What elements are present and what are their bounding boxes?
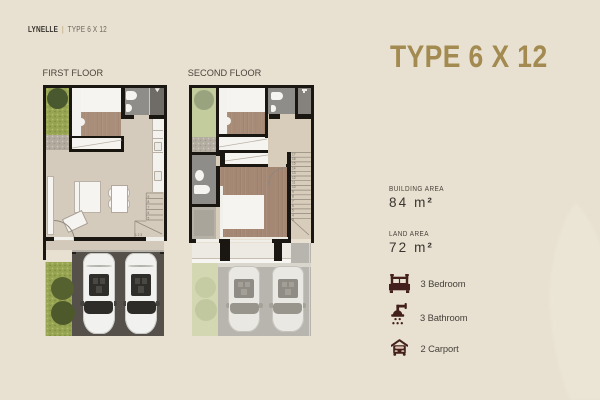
svg-text:10: 10 [292,185,296,189]
svg-text:13: 13 [292,171,296,175]
svg-text:17: 17 [292,152,296,156]
svg-text:15: 15 [292,162,296,166]
svg-text:3: 3 [292,218,294,222]
svg-text:4: 4 [292,213,294,217]
svg-text:7: 7 [292,199,294,203]
svg-text:7: 7 [147,205,149,209]
svg-text:8: 8 [292,194,294,198]
svg-text:6: 6 [292,204,294,208]
svg-text:12: 12 [292,176,296,180]
svg-text:9: 9 [147,195,149,199]
svg-text:5: 5 [292,209,294,213]
svg-text:8: 8 [147,200,149,204]
svg-text:6: 6 [147,211,149,215]
svg-text:5: 5 [147,216,149,220]
svg-text:9: 9 [292,190,294,194]
svg-text:16: 16 [292,157,296,161]
svg-text:14: 14 [292,166,296,170]
svg-text:11: 11 [292,180,296,184]
